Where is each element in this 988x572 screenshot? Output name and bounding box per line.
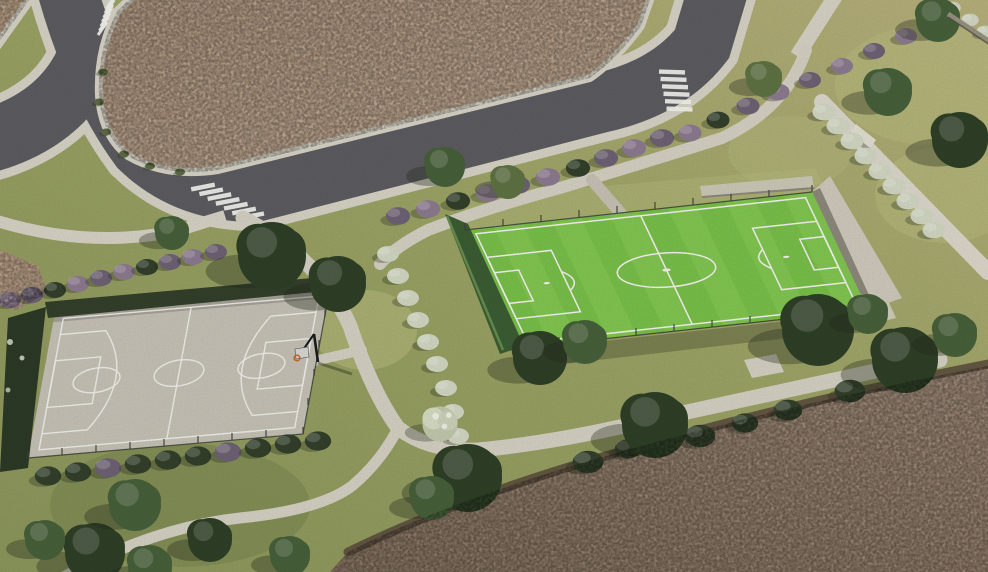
aerial-render: Aerial 3D rendering of a residential spo…: [0, 0, 988, 572]
texture-overlays: [0, 0, 988, 572]
film-grain: [0, 0, 988, 572]
